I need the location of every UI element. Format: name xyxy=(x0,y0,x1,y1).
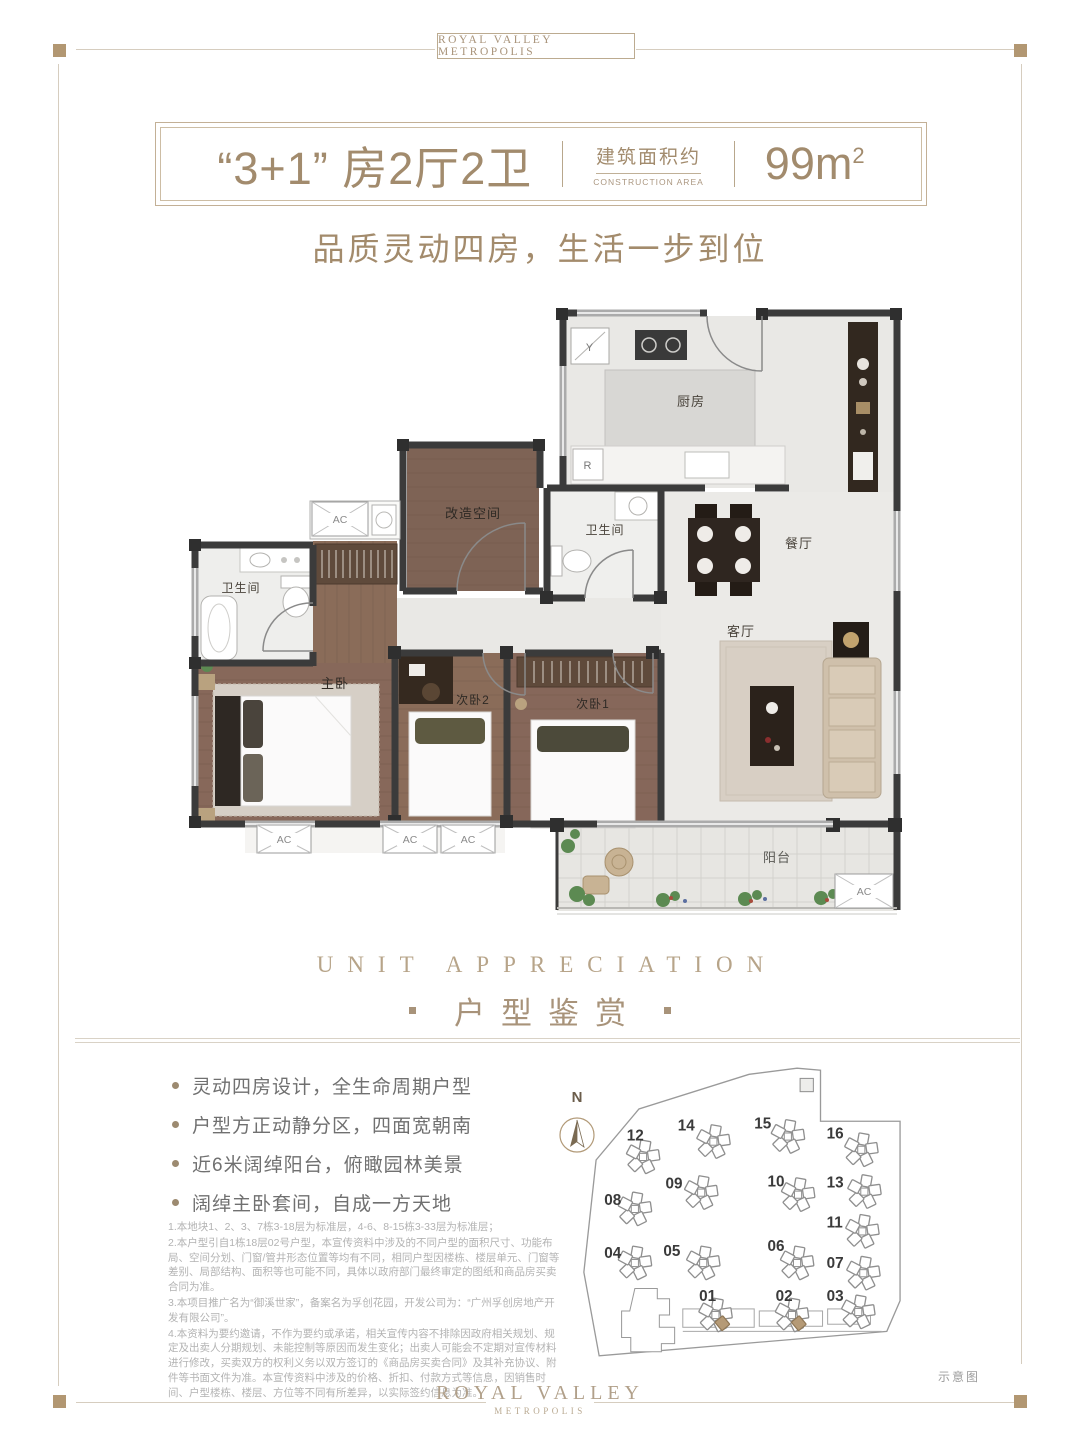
title-divider-2 xyxy=(734,141,735,187)
label-flex: 改造空间 xyxy=(445,506,501,521)
building-11 xyxy=(846,1214,880,1248)
building-10 xyxy=(781,1178,815,1212)
building-number: 02 xyxy=(776,1288,793,1305)
label-kitchen: 厨房 xyxy=(677,394,705,409)
building-number: 01 xyxy=(699,1288,716,1305)
feature-item: 灵动四房设计，全生命周期户型 xyxy=(172,1072,592,1099)
master-bedroom-furniture xyxy=(197,674,379,824)
bedroom1-furniture xyxy=(515,657,653,828)
label-balcony: 阳台 xyxy=(763,850,791,865)
brand-footer-line2: METROPOLIS xyxy=(0,1406,1080,1416)
label-bed2: 次卧2 xyxy=(456,693,490,707)
label-living: 客厅 xyxy=(727,624,755,639)
area-label-cn: 建筑面积约 xyxy=(596,142,701,174)
site-plan: 01 02 03 04 05 06 07 08 09 10 11 12 13 1… xyxy=(575,1058,1015,1364)
area-value-sup: 2 xyxy=(852,143,864,168)
feature-text: 阔绰主卧套间，自成一方天地 xyxy=(192,1189,452,1216)
subtitle: 品质灵动四房，生活一步到位 xyxy=(0,224,1080,270)
building-number: 13 xyxy=(827,1175,844,1192)
section-divider-line-1 xyxy=(75,1038,1020,1039)
building-04 xyxy=(618,1246,652,1280)
disclaimer-line: 1.本地块1、2、3、7栋3-18层为标准层，4-6、8-15栋3-33层为标准… xyxy=(168,1220,562,1235)
bullet-icon xyxy=(172,1160,179,1167)
site-clubhouse xyxy=(622,1289,675,1352)
building-13 xyxy=(848,1175,882,1209)
building-12 xyxy=(626,1140,660,1174)
feature-text: 户型方正动静分区，四面宽朝南 xyxy=(192,1111,472,1138)
building-05 xyxy=(686,1246,720,1280)
label-bath1: 卫生间 xyxy=(221,581,260,595)
site-marker-square xyxy=(800,1078,813,1091)
building-06 xyxy=(780,1246,814,1280)
building-number: 16 xyxy=(827,1126,844,1143)
feature-item: 近6米阔绰阳台，俯瞰园林美景 xyxy=(172,1150,592,1177)
building-number: 10 xyxy=(767,1174,784,1191)
building-number: 09 xyxy=(665,1176,682,1193)
entry-cabinet xyxy=(848,322,878,492)
bullet-icon xyxy=(172,1121,179,1128)
disclaimer: 1.本地块1、2、3、7栋3-18层为标准层，4-6、8-15栋3-33层为标准… xyxy=(168,1220,562,1402)
building-number: 11 xyxy=(827,1214,844,1231)
label-y-mark: Y xyxy=(586,342,594,354)
section-title-cn: 户型鉴赏 xyxy=(438,988,642,1033)
disclaimer-line: 2.本户型引自1栋18层02号户型，本宣传资料中涉及的不同户型的面积尺寸、功能布… xyxy=(168,1236,562,1295)
label-master: 主卧 xyxy=(321,676,349,691)
label-r-mark: R xyxy=(584,460,593,472)
building-03 xyxy=(841,1295,875,1329)
floor-plan: AC AC AC AC AC 厨房 餐厅 客厅 阳台 主卧 次卧2 次卧1 卫生… xyxy=(185,306,905,918)
building-15 xyxy=(771,1120,805,1154)
building-number: 14 xyxy=(678,1117,695,1134)
title-box: “3+1” 房2厅2卫 建筑面积约 CONSTRUCTION AREA 99m2 xyxy=(155,122,927,206)
section-title-row: 户型鉴赏 xyxy=(0,988,1080,1033)
building-07 xyxy=(847,1256,881,1290)
living-room-furniture xyxy=(720,622,881,801)
frame-line-top-right xyxy=(636,49,1014,50)
ac-label: AC xyxy=(857,886,872,898)
building-number: 06 xyxy=(767,1238,784,1255)
section-title-en: UNIT APPRECIATION xyxy=(0,952,1080,978)
feature-list: 灵动四房设计，全生命周期户型 户型方正动静分区，四面宽朝南 近6米阔绰阳台，俯瞰… xyxy=(172,1072,592,1228)
bullet-icon xyxy=(172,1082,179,1089)
area-label: 建筑面积约 CONSTRUCTION AREA xyxy=(593,142,704,187)
brand-footer-line1: ROYAL VALLEY xyxy=(0,1382,1080,1405)
page: { "brand": { "header": "ROYAL VALLEY MET… xyxy=(0,0,1080,1454)
building-09 xyxy=(684,1176,718,1210)
disclaimer-line: 3.本项目推广名为“御溪世家”，备案名为孚创花园，开发公司为：“广州孚创房地产开… xyxy=(168,1296,562,1326)
building-number: 12 xyxy=(627,1128,644,1145)
section-square-right xyxy=(664,1007,671,1014)
label-bed1: 次卧1 xyxy=(576,697,610,711)
master-closet xyxy=(315,544,397,584)
label-bath2: 卫生间 xyxy=(585,523,624,537)
brand-header-text: ROYAL VALLEY METROPOLIS xyxy=(438,34,634,58)
section-divider-line-2 xyxy=(75,1042,1020,1043)
building-08 xyxy=(618,1192,652,1226)
area-value: 99m2 xyxy=(765,138,865,190)
feature-item: 户型方正动静分区，四面宽朝南 xyxy=(172,1111,592,1138)
ac-label: AC xyxy=(403,834,418,846)
ac-label: AC xyxy=(333,514,348,526)
area-label-en: CONSTRUCTION AREA xyxy=(593,177,704,187)
feature-text: 近6米阔绰阳台，俯瞰园林美景 xyxy=(192,1150,464,1177)
building-number: 15 xyxy=(754,1115,771,1132)
building-number: 07 xyxy=(827,1255,844,1272)
building-number: 08 xyxy=(604,1192,621,1209)
corner-square-top-left xyxy=(53,44,66,57)
feature-item: 阔绰主卧套间，自成一方天地 xyxy=(172,1189,592,1216)
brand-header: ROYAL VALLEY METROPOLIS xyxy=(437,33,635,59)
ac-label: AC xyxy=(461,834,476,846)
building-number: 03 xyxy=(827,1288,844,1305)
title-main: “3+1” 房2厅2卫 xyxy=(217,132,532,197)
building-number: 05 xyxy=(663,1243,680,1260)
frame-line-top-left xyxy=(76,49,435,50)
title-divider-1 xyxy=(562,141,563,187)
building-14 xyxy=(697,1125,731,1159)
label-dining: 餐厅 xyxy=(785,536,813,551)
bullet-icon xyxy=(172,1199,179,1206)
feature-text: 灵动四房设计，全生命周期户型 xyxy=(192,1072,472,1099)
building-16 xyxy=(844,1133,878,1167)
building-number: 04 xyxy=(604,1245,621,1262)
section-square-left xyxy=(409,1007,416,1014)
schematic-note: 示意图 xyxy=(938,1368,980,1385)
corner-square-top-right xyxy=(1014,44,1027,57)
ac-label: AC xyxy=(277,834,292,846)
